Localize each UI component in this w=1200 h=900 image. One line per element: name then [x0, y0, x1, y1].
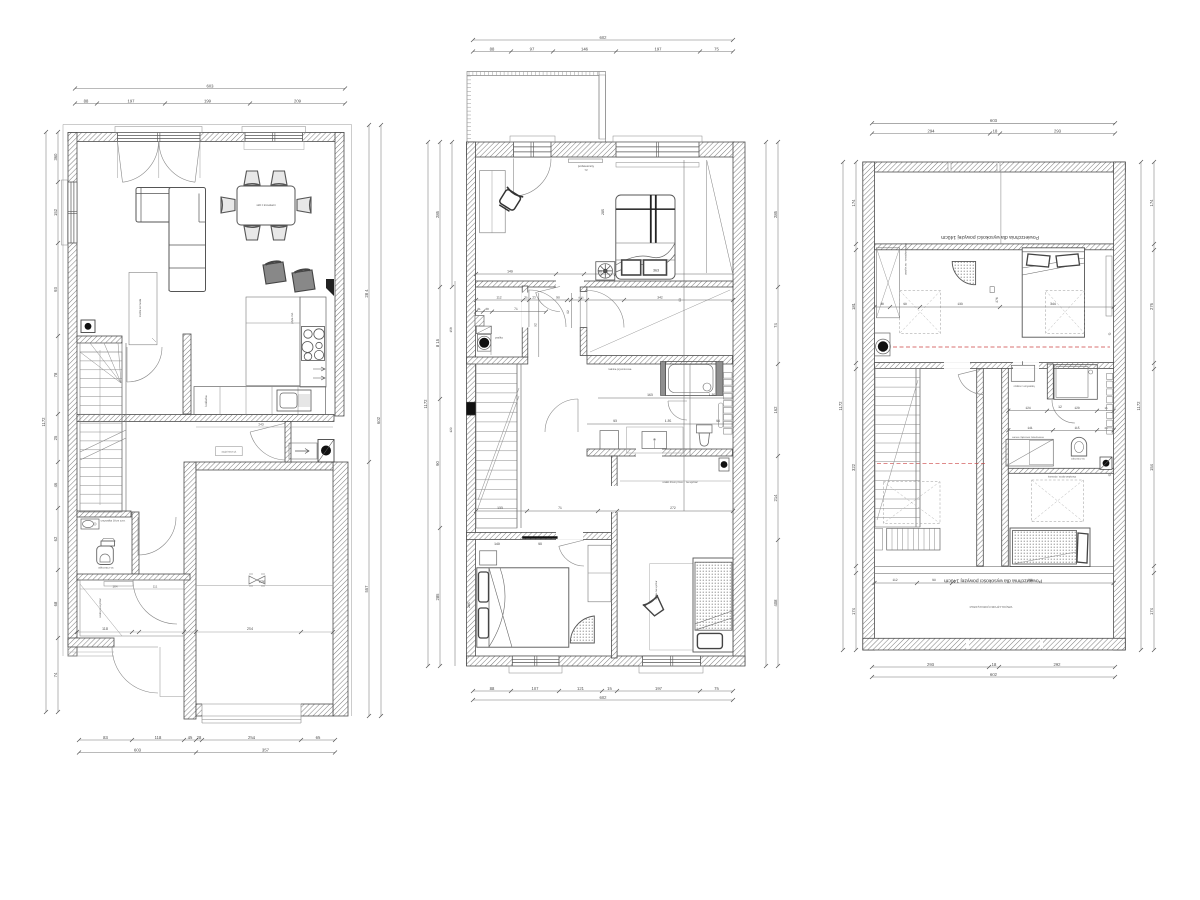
svg-text:181: 181 [851, 302, 856, 310]
svg-text:124: 124 [1025, 406, 1031, 410]
svg-text:1.35: 1.35 [665, 419, 672, 423]
svg-text:65: 65 [316, 735, 321, 740]
svg-text:112: 112 [496, 296, 501, 300]
svg-text:149: 149 [494, 542, 500, 546]
svg-text:23: 23 [532, 296, 536, 300]
svg-text:164: 164 [112, 585, 117, 589]
svg-text:węgiel 50cm pł.: węgiel 50cm pł. [221, 451, 236, 454]
svg-text:25: 25 [53, 435, 58, 440]
svg-text:62: 62 [53, 536, 58, 541]
svg-text:G: G [1108, 333, 1112, 336]
svg-text:111: 111 [153, 585, 158, 589]
svg-text:15: 15 [607, 686, 612, 691]
svg-text:162: 162 [773, 406, 778, 414]
svg-text:8 15: 8 15 [578, 297, 584, 300]
svg-text:lodówka: lodówka [204, 395, 208, 406]
svg-text:75: 75 [714, 46, 719, 51]
svg-text:G: G [1108, 474, 1112, 477]
svg-text:meble komoda: meble komoda [138, 298, 142, 317]
svg-text:285: 285 [467, 602, 471, 608]
svg-text:243: 243 [258, 423, 264, 427]
svg-text:88: 88 [490, 686, 495, 691]
svg-text:146: 146 [581, 46, 589, 51]
svg-text:90: 90 [435, 461, 440, 466]
svg-text:294: 294 [928, 128, 936, 133]
svg-text:90: 90 [903, 302, 907, 306]
svg-text:602: 602 [990, 672, 998, 677]
svg-text:199: 199 [204, 98, 212, 103]
svg-text:154: 154 [1149, 463, 1154, 471]
svg-text:285: 285 [773, 210, 778, 218]
svg-text:322: 322 [851, 463, 856, 471]
svg-text:umywalka 30cm szer.: umywalka 30cm szer. [101, 520, 126, 523]
svg-text:152: 152 [53, 208, 58, 216]
svg-text:wanna częściowo zabudowana: wanna częściowo zabudowana [1012, 436, 1044, 439]
svg-text:28: 28 [197, 735, 202, 740]
svg-text:602: 602 [600, 695, 608, 700]
svg-text:174: 174 [1149, 199, 1154, 207]
svg-text:158: 158 [449, 327, 453, 333]
svg-text:285: 285 [435, 210, 440, 218]
svg-text:292: 292 [1054, 662, 1062, 667]
svg-text:Powierzchnia dla wysokości pow: Powierzchnia dla wysokości powyżej 140cm [941, 234, 1039, 240]
svg-text:35: 35 [524, 296, 528, 300]
svg-text:93: 93 [53, 287, 58, 292]
svg-text:8 15: 8 15 [435, 338, 440, 347]
svg-text:szafa na wymiar: szafa na wymiar [99, 598, 102, 618]
svg-text:90: 90 [538, 542, 542, 546]
svg-text:92: 92 [534, 323, 538, 327]
svg-text:197: 197 [655, 686, 663, 691]
svg-text:120: 120 [1074, 406, 1080, 410]
svg-text:163: 163 [647, 393, 653, 397]
svg-text:odkurzacz wc: odkurzacz wc [98, 567, 114, 570]
svg-text:46: 46 [53, 482, 58, 487]
svg-text:357: 357 [262, 747, 270, 752]
svg-text:90: 90 [932, 578, 936, 582]
svg-text:603: 603 [990, 118, 998, 123]
svg-text:szafki drzwi przes. - na wymia: szafki drzwi przes. - na wymiar [662, 481, 697, 484]
svg-text:557: 557 [364, 585, 369, 593]
svg-text:komoda / szafa wnękowa: komoda / szafa wnękowa [1048, 476, 1077, 479]
svg-text:115: 115 [1074, 426, 1079, 430]
svg-text:276: 276 [1149, 302, 1154, 310]
svg-text:133: 133 [497, 506, 503, 510]
svg-text:363: 363 [653, 269, 659, 273]
svg-text:92: 92 [566, 310, 570, 314]
svg-text:112: 112 [892, 578, 897, 582]
svg-text:293: 293 [1054, 128, 1062, 133]
svg-text:pralka: pralka [495, 336, 503, 340]
svg-text:88: 88 [84, 98, 89, 103]
svg-text:kabina prysznicowa: kabina prysznicowa [609, 368, 632, 371]
svg-text:18: 18 [993, 128, 998, 133]
svg-text:odkurzacz wc: odkurzacz wc [1071, 458, 1086, 461]
svg-text:płyta ind.: płyta ind. [290, 312, 294, 323]
svg-text:400: 400 [1027, 578, 1033, 582]
svg-text:344: 344 [1050, 302, 1056, 306]
svg-text:38: 38 [880, 302, 884, 306]
svg-text:254: 254 [248, 735, 256, 740]
svg-text:197: 197 [655, 46, 663, 51]
svg-text:97: 97 [530, 46, 535, 51]
svg-text:90: 90 [556, 296, 560, 300]
svg-text:71: 71 [558, 506, 562, 510]
svg-text:360: 360 [53, 153, 58, 161]
svg-text:88: 88 [490, 46, 495, 51]
svg-text:285: 285 [435, 593, 440, 601]
svg-text:PRZESTRZEŃ NIEUŻYTKOWA: PRZESTRZEŃ NIEUŻYTKOWA [970, 605, 1013, 609]
svg-text:149: 149 [507, 270, 513, 274]
svg-text:118: 118 [102, 627, 108, 631]
svg-text:209: 209 [294, 98, 302, 103]
svg-text:603: 603 [134, 747, 142, 752]
svg-text:45: 45 [188, 735, 193, 740]
svg-text:1172: 1172 [838, 401, 843, 411]
svg-text:272: 272 [670, 506, 676, 510]
svg-text:18: 18 [992, 662, 997, 667]
svg-text:197: 197 [128, 98, 136, 103]
svg-text:74: 74 [53, 672, 58, 677]
svg-text:28 4: 28 4 [364, 289, 369, 298]
svg-text:603: 603 [207, 83, 215, 88]
svg-text:1.35: 1.35 [709, 393, 716, 397]
svg-text:214: 214 [773, 494, 778, 502]
svg-text:20: 20 [485, 307, 489, 311]
svg-text:1172: 1172 [423, 399, 428, 409]
svg-text:285: 285 [601, 209, 605, 215]
svg-text:78: 78 [53, 372, 58, 377]
svg-text:602: 602 [600, 35, 608, 40]
svg-text:93: 93 [613, 419, 617, 423]
svg-text:408: 408 [773, 599, 778, 607]
svg-text:174: 174 [851, 199, 856, 207]
svg-text:107: 107 [532, 686, 540, 691]
svg-text:12: 12 [1058, 405, 1062, 409]
svg-text:254: 254 [247, 627, 253, 631]
svg-text:21: 21 [477, 307, 481, 311]
svg-text:83: 83 [103, 735, 108, 740]
svg-text:118: 118 [155, 735, 162, 740]
svg-text:1172: 1172 [41, 417, 46, 427]
svg-text:121: 121 [577, 686, 585, 691]
svg-text:szafa wnękowa - na wymiar: szafa wnękowa - na wymiar [904, 243, 907, 275]
svg-text:129: 129 [449, 427, 453, 433]
svg-text:74: 74 [773, 323, 778, 328]
svg-text:1172: 1172 [1136, 401, 1141, 411]
svg-text:15: 15 [1104, 406, 1108, 410]
svg-text:meble na wymiar: meble na wymiar [655, 580, 658, 599]
svg-text:133: 133 [957, 302, 963, 306]
svg-text:293: 293 [927, 662, 935, 667]
svg-text:szafka z umywalką: szafka z umywalką [1014, 385, 1036, 388]
svg-text:342: 342 [657, 296, 663, 300]
svg-text:68: 68 [53, 601, 58, 606]
svg-text:276: 276 [995, 297, 999, 303]
svg-text:602: 602 [376, 416, 381, 424]
svg-text:141: 141 [1027, 426, 1033, 430]
svg-text:174: 174 [851, 607, 856, 615]
svg-text:75: 75 [714, 686, 719, 691]
svg-text:94: 94 [716, 419, 720, 423]
svg-text:71: 71 [514, 307, 518, 311]
svg-text:174: 174 [1149, 607, 1154, 615]
svg-text:stół z krzesłami: stół z krzesłami [256, 203, 275, 207]
svg-text:TV: TV [584, 168, 588, 172]
